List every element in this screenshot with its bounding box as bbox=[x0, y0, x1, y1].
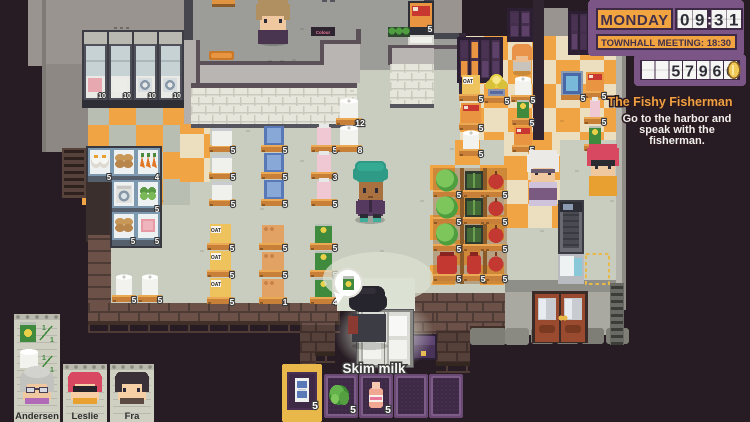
svg-text:5: 5 bbox=[503, 217, 508, 227]
svg-text:5: 5 bbox=[350, 404, 356, 416]
svg-text:5: 5 bbox=[283, 270, 288, 280]
svg-text:OAT: OAT bbox=[211, 255, 221, 261]
svg-text:5: 5 bbox=[602, 91, 607, 101]
svg-text:Colour: Colour bbox=[316, 30, 331, 35]
svg-text:1: 1 bbox=[729, 11, 738, 30]
svg-text:5: 5 bbox=[231, 145, 236, 155]
svg-text:6: 6 bbox=[712, 64, 721, 81]
svg-text:5: 5 bbox=[457, 190, 462, 200]
svg-text:5: 5 bbox=[230, 297, 235, 307]
svg-text:10: 10 bbox=[98, 93, 106, 100]
svg-text:5: 5 bbox=[581, 93, 586, 103]
svg-text:OAT: OAT bbox=[463, 79, 473, 85]
svg-text:5: 5 bbox=[107, 173, 112, 182]
svg-text:5: 5 bbox=[385, 404, 391, 416]
svg-text:5: 5 bbox=[457, 244, 462, 254]
svg-text:5: 5 bbox=[158, 295, 163, 305]
svg-text:Andersen: Andersen bbox=[15, 411, 59, 422]
svg-text:1: 1 bbox=[42, 325, 46, 332]
svg-text:5: 5 bbox=[479, 123, 484, 133]
svg-text:5: 5 bbox=[132, 295, 137, 305]
svg-text:5: 5 bbox=[312, 400, 318, 412]
svg-text:5: 5 bbox=[503, 274, 508, 284]
svg-text:5: 5 bbox=[333, 199, 338, 209]
svg-text:fisherman.: fisherman. bbox=[649, 135, 705, 147]
svg-text:3: 3 bbox=[333, 172, 338, 182]
svg-text:MONDAY: MONDAY bbox=[600, 12, 668, 29]
svg-text:5: 5 bbox=[457, 274, 462, 284]
svg-text:1: 1 bbox=[42, 355, 46, 362]
svg-text:5: 5 bbox=[602, 117, 607, 127]
svg-text:5: 5 bbox=[283, 243, 288, 253]
svg-text:10: 10 bbox=[123, 93, 131, 100]
svg-text:5: 5 bbox=[531, 95, 536, 105]
svg-text::: : bbox=[707, 12, 712, 29]
svg-text:OAT: OAT bbox=[211, 228, 221, 234]
svg-text:5: 5 bbox=[479, 149, 484, 159]
svg-text:5: 5 bbox=[155, 237, 160, 246]
svg-text:0: 0 bbox=[680, 11, 689, 30]
svg-text:10: 10 bbox=[173, 93, 181, 100]
svg-text:5: 5 bbox=[503, 244, 508, 254]
svg-text:5: 5 bbox=[671, 64, 680, 81]
svg-text:The Fishy Fisherman: The Fishy Fisherman bbox=[607, 95, 732, 109]
svg-text:Leslie: Leslie bbox=[72, 411, 99, 422]
svg-text:OAT: OAT bbox=[211, 282, 221, 288]
svg-text:7: 7 bbox=[685, 64, 694, 81]
svg-text:9: 9 bbox=[699, 64, 708, 81]
svg-text:1: 1 bbox=[283, 297, 288, 307]
svg-text:8: 8 bbox=[358, 145, 363, 155]
svg-text:TOWNHALL MEETING: 18:30: TOWNHALL MEETING: 18:30 bbox=[601, 38, 731, 49]
svg-text:5: 5 bbox=[131, 237, 136, 246]
svg-text:10: 10 bbox=[148, 93, 156, 100]
svg-text:Fra: Fra bbox=[125, 411, 141, 422]
svg-text:5: 5 bbox=[503, 190, 508, 200]
svg-text:5: 5 bbox=[457, 217, 462, 227]
svg-text:5: 5 bbox=[231, 172, 236, 182]
svg-text:1: 1 bbox=[50, 337, 54, 344]
svg-text:Skim milk: Skim milk bbox=[342, 361, 406, 376]
svg-text:5: 5 bbox=[231, 199, 236, 209]
svg-text:5: 5 bbox=[283, 199, 288, 209]
svg-text:5: 5 bbox=[428, 24, 433, 34]
svg-text:9: 9 bbox=[695, 11, 704, 30]
svg-text:3: 3 bbox=[714, 11, 723, 30]
svg-text:5: 5 bbox=[481, 274, 486, 284]
svg-text:5: 5 bbox=[505, 96, 510, 106]
svg-text:5: 5 bbox=[479, 94, 484, 104]
svg-text:12: 12 bbox=[355, 118, 365, 128]
svg-text:5: 5 bbox=[333, 243, 338, 253]
